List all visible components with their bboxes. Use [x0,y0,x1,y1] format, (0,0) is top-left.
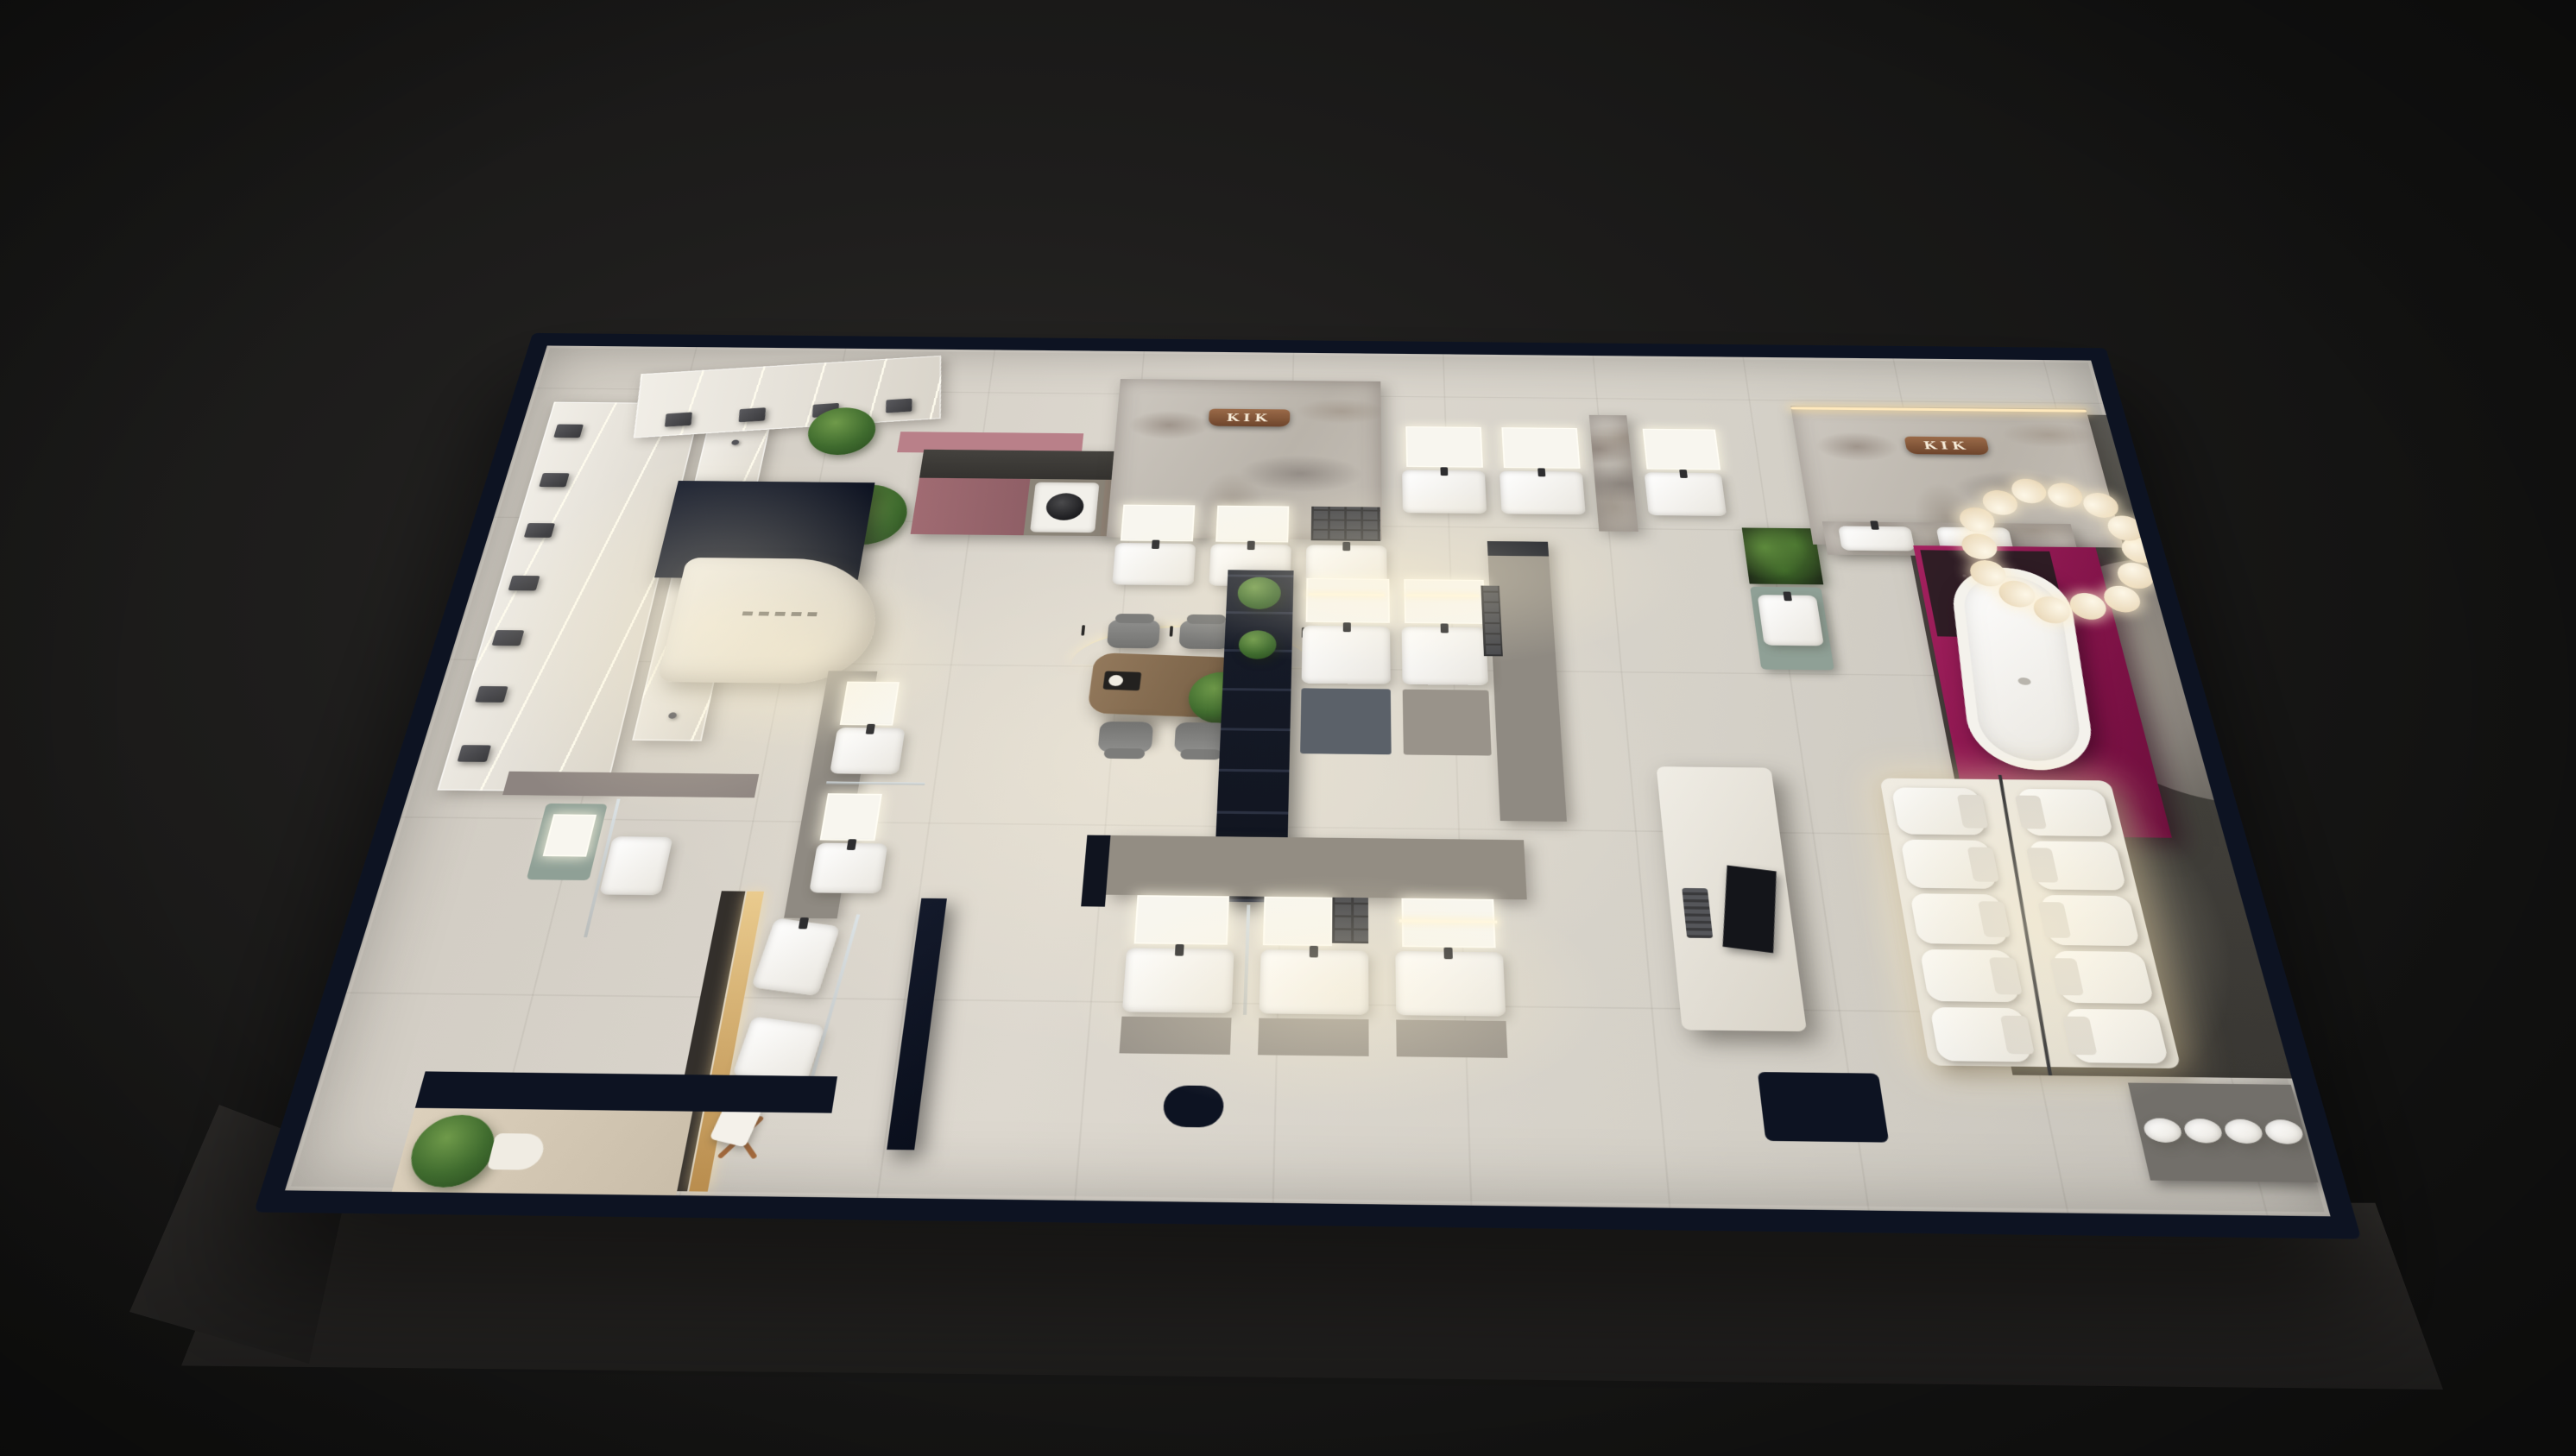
pendant-hook [1081,625,1085,635]
glass-partition [1243,904,1250,1014]
brand-sign: KIK [1208,409,1290,427]
toilet [2064,1009,2169,1064]
vanity-unit [828,682,920,778]
island-partition-wall [1487,541,1567,822]
vanity-mirror [1215,506,1289,543]
faucet [1537,468,1545,476]
faucet [1342,542,1350,551]
island-vanity-taupe [1399,579,1493,762]
vessel-basin-counter [2128,1083,2318,1183]
vanity-basin [599,836,673,895]
vanity-mirror [1306,578,1390,623]
vanity-mirror [1263,897,1333,946]
cabinet-base [1258,1018,1369,1056]
toilet-tank [1967,847,1999,881]
reception-desk [657,558,886,684]
entry-floor [390,1108,693,1202]
rain-shower-head [664,413,691,427]
vanity-unit [1390,898,1513,1059]
vanity-unit [1110,505,1201,589]
mauve-back-wall [502,772,759,798]
faucet [866,724,875,734]
display-screen [1723,866,1777,954]
rain-shower-head [553,424,584,438]
faucet [1440,467,1448,476]
vanity-unit [1400,426,1490,522]
toilet-tank [2015,796,2047,829]
hand-shower [731,440,740,445]
island-vanity-dark [1298,578,1393,761]
chandelier-globe [2032,594,2071,627]
vanity-basin [1402,470,1487,514]
vanity-mirror [1501,427,1580,469]
toilet [2040,895,2141,946]
vessel-basin [2181,1119,2225,1144]
vanity-unit [807,793,904,897]
tea-tray [1102,671,1141,690]
dark-cubby-shelf [1332,898,1368,944]
vanity-mirror [1405,426,1483,468]
toilet-tank [2037,902,2071,938]
pendant-hook [1169,626,1172,636]
chair [1098,722,1154,753]
navy-runner-mat [1163,1085,1225,1127]
toilet-tank [1978,901,2011,937]
vessel-basin [2142,1118,2184,1143]
toilet [1929,1007,2032,1062]
vanity-mirror [820,793,882,841]
toilet [1900,840,1997,889]
vanity-basin [830,728,906,774]
vanity-basin [1259,949,1368,1015]
side-shelf [1481,586,1502,657]
toilet-tank [2000,1016,2035,1055]
desk-printed-text [742,612,818,617]
shower-display-top-wall [634,356,941,438]
vanity-basin [1112,543,1196,585]
toilet [2017,789,2114,836]
taupe-cabinet [1403,690,1492,756]
control-panel [1682,888,1713,938]
entry-plant [402,1114,502,1188]
vanity-unit [1253,897,1374,1058]
vanity-basin [1302,626,1391,684]
vanity-mirror [1121,505,1196,542]
marble-pillar [1589,415,1638,532]
vanity-basin [1402,627,1489,685]
chandelier-globe [1960,533,1999,560]
vanity-mirror [840,682,900,726]
vanity-unit [1638,429,1731,525]
vanity-row-partition [1106,835,1527,899]
vanity-basin [809,843,887,894]
toilet [1920,949,2021,1002]
faucet [1441,623,1449,633]
rain-shower-head [524,523,555,538]
faucet [1175,944,1184,956]
sage-vanity-unit [1750,587,1834,671]
vanity-basin [1645,472,1727,516]
entry-pedestal [487,1133,547,1170]
faucet [1310,946,1318,958]
toilet-tank [2049,958,2084,995]
dark-cabinet [1300,688,1392,754]
rain-shower-head [475,686,508,703]
vanity-basin [1838,526,1915,551]
vessel-basin [2263,1119,2306,1144]
faucet [1247,541,1255,550]
vanity-basin [1122,948,1234,1013]
rain-shower-head [738,407,766,422]
rain-shower-head [886,399,912,413]
chandelier-globe [2118,537,2161,563]
navy-floor-mat [1758,1072,1889,1143]
vessel-basin [2222,1119,2265,1144]
vanity-basin [751,918,840,997]
showroom-floorplate: KIK KIK [254,333,2361,1239]
vanity-basin [1395,951,1506,1017]
washing-machine [1030,482,1099,533]
rain-shower-head [508,576,540,591]
led-cove-light [1790,407,2087,412]
faucet [1343,622,1351,632]
faucet [1870,520,1879,529]
rain-shower-head [458,745,491,762]
toilet [2028,841,2127,890]
chair [1107,620,1160,649]
toilet-tank [1957,795,1989,829]
lit-frame-mirror [1134,895,1229,945]
vanity-shelf-cubbies [1311,507,1381,541]
towel-ladder [708,1111,776,1163]
hand-shower [668,712,678,718]
faucet [1679,470,1688,478]
vanity-unit [1496,427,1589,523]
navy-partition [415,1071,837,1112]
brand-sign: KIK [1904,437,1989,455]
toilet-tank [2026,848,2059,882]
brand-sign-text: KIK [1226,412,1272,425]
toilet-tank [2062,1017,2098,1056]
vanity-unit [1114,895,1241,1056]
rain-shower-head [492,630,525,646]
faucet [1152,540,1160,549]
vanity-mirror [1404,579,1486,624]
vanity-basin [1500,471,1586,515]
vanity-mirror [1643,429,1720,470]
toilet [1910,893,2009,944]
cabinet-base [1119,1017,1231,1055]
brand-sign-text: KIK [1923,439,1971,452]
faucet [1783,591,1792,601]
faucet [847,839,857,850]
toilet [1891,787,1986,835]
toilet-tank [1989,957,2023,994]
cabinet-base [1396,1019,1507,1057]
faucet [1443,948,1452,960]
chandelier-globe [2046,480,2084,511]
pink-cabinet-front [911,478,1031,536]
rain-shower-head [539,473,569,487]
smart-toilet-demo-unit [1657,766,1807,1031]
toilet [2052,951,2155,1004]
vanity-basin [1758,595,1824,646]
